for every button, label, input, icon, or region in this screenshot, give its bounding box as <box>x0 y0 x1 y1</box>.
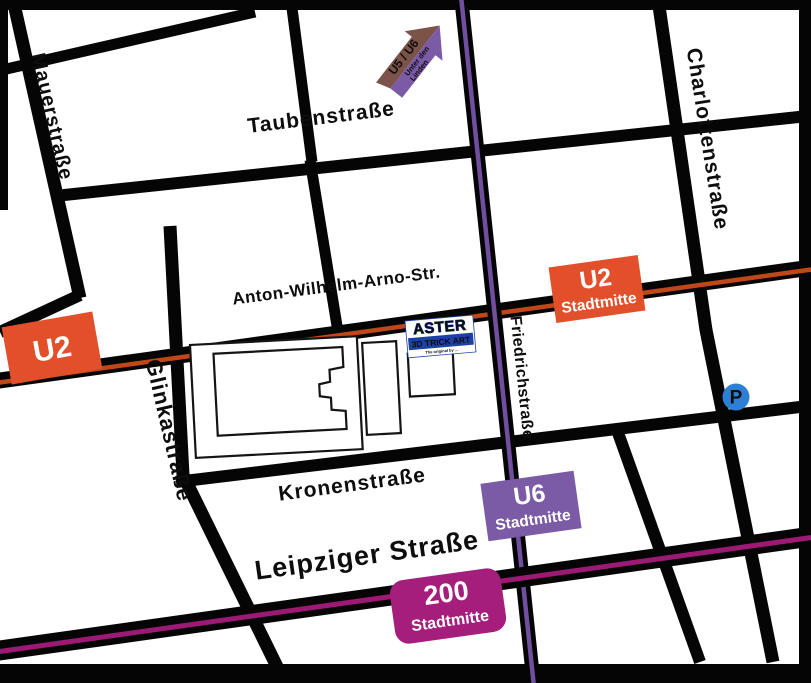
edge-street-bottom <box>0 664 811 683</box>
edge-street-left <box>0 0 8 210</box>
street-vertical-upper <box>292 8 312 162</box>
parking-icon: P <box>723 384 750 411</box>
u6-stadtmitte-badge: U6 Stadtmitte <box>480 471 581 542</box>
u2-west-badge-label: U2 <box>31 330 75 369</box>
street-labels: Mauerstraße Taubenstraße Charlottenstraß… <box>27 46 734 585</box>
taubenstrasse-label: Taubenstraße <box>246 97 396 138</box>
u2-stadtmitte-badge: U2 Stadtmitte <box>549 255 646 323</box>
u5-u6-direction-arrow-icon: U5 / U6 Unter den Linden <box>369 11 459 107</box>
building-annex-outline <box>362 341 401 435</box>
aster-3d-trick-art-logo: ASTER 3D TRICK ART The original by ... <box>405 315 476 358</box>
glinkastrasse-label: Glinkastraße <box>141 357 198 504</box>
transit-map: Mauerstraße Taubenstraße Charlottenstraß… <box>0 0 811 683</box>
parking-icon-letter: P <box>730 388 743 409</box>
u6-stadtmitte-line-label: U6 <box>512 479 548 511</box>
bus-200-line-label: 200 <box>422 575 471 611</box>
edge-street-top <box>0 0 811 10</box>
edge-street-right <box>799 0 811 683</box>
building-square-outline <box>408 351 455 396</box>
bus-200-stadtmitte-badge: 200 Stadtmitte <box>388 567 508 646</box>
u2-stadtmitte-line-label: U2 <box>578 263 614 295</box>
street-vertical-lower <box>310 160 338 332</box>
